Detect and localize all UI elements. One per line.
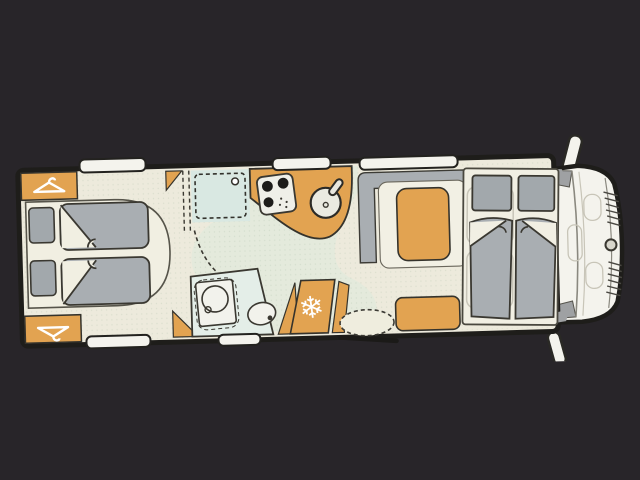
snowflake-icon: ❄ <box>297 289 327 327</box>
front-bed-duvet-right <box>515 218 556 319</box>
toilet <box>193 277 240 331</box>
seat-cushion-main <box>396 187 450 260</box>
shower-cabin <box>191 169 250 223</box>
bed-pillow-top <box>29 207 55 243</box>
drop-down-bed <box>462 168 558 325</box>
floorplan: ❄ <box>5 123 635 376</box>
wardrobe-rear-top <box>21 172 78 201</box>
seat-cushion-side <box>395 296 460 331</box>
window-rear-top <box>79 158 145 173</box>
bottom-side-mirror <box>546 330 567 366</box>
front-bed-duvet-left <box>469 218 512 319</box>
shower-drain-icon <box>232 178 239 185</box>
bed-duvet-bottom <box>61 257 150 305</box>
brand-logo <box>605 239 616 250</box>
front-bed-pillow-right <box>518 176 554 211</box>
front-bed-pillow-left <box>472 175 511 210</box>
bed-pillow-bottom <box>30 260 56 296</box>
floorplan-svg: ❄ <box>5 123 635 376</box>
driver-cab <box>551 165 624 323</box>
window-rear-bottom <box>86 335 150 349</box>
window-lounge-top <box>359 155 457 170</box>
window-bath-bottom <box>218 334 260 346</box>
bed-duvet-top <box>60 202 149 250</box>
hob <box>256 173 297 215</box>
window-kitchen-top <box>272 157 330 171</box>
